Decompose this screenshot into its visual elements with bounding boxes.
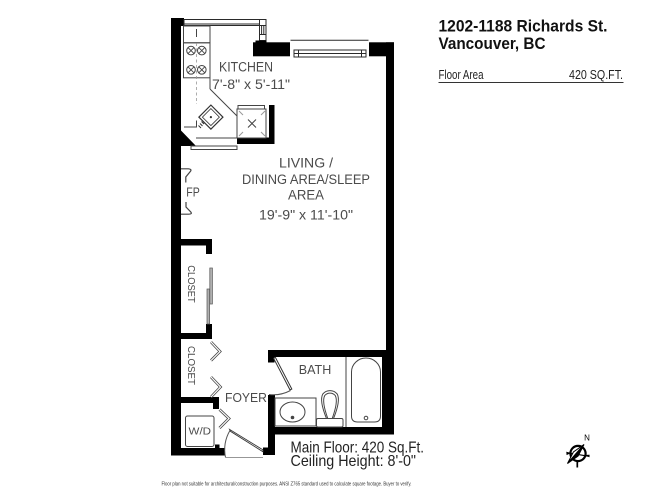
svg-text:DINING AREA/SLEEP: DINING AREA/SLEEP: [242, 172, 370, 187]
svg-text:Vancouver, BC: Vancouver, BC: [439, 34, 546, 53]
svg-text:N: N: [584, 434, 590, 443]
svg-text:FOYER: FOYER: [225, 390, 267, 405]
svg-text:LIVING /: LIVING /: [279, 156, 333, 171]
svg-text:Floor plan not suitable for ar: Floor plan not suitable for architectura…: [162, 482, 412, 488]
svg-text:AREA: AREA: [288, 188, 324, 203]
svg-text:7'-8" x 5'-11": 7'-8" x 5'-11": [212, 76, 290, 92]
svg-text:1202-1188 Richards St.: 1202-1188 Richards St.: [439, 17, 608, 36]
svg-text:Ceiling Height: 8'-0": Ceiling Height: 8'-0": [291, 453, 417, 470]
svg-text:BATH: BATH: [299, 362, 332, 377]
svg-text:420 SQ.FT.: 420 SQ.FT.: [569, 67, 623, 82]
svg-text:CLOSET: CLOSET: [185, 346, 197, 386]
svg-text:19'-9" x 11'-10": 19'-9" x 11'-10": [259, 207, 353, 223]
svg-text:CLOSET: CLOSET: [185, 265, 197, 303]
svg-text:KITCHEN: KITCHEN: [219, 60, 273, 75]
svg-text:Floor Area: Floor Area: [439, 67, 485, 82]
svg-text:W/D: W/D: [189, 427, 212, 438]
svg-text:FP: FP: [186, 186, 200, 200]
